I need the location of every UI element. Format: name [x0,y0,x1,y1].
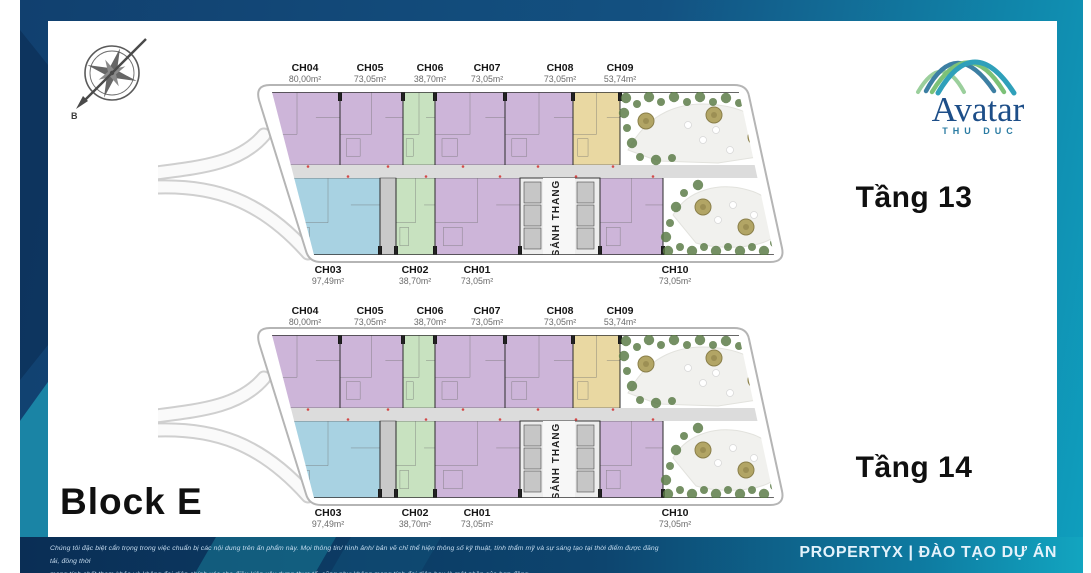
unit-id-label: CH09 [607,62,634,74]
disclaimer-line-2: mang tính chất tham khảo và không đại di… [50,568,670,573]
unit-area-label: 97,49m² [312,276,344,286]
unit-area-label: 53,74m² [604,317,636,327]
content-panel: B Avatar THU DUC SẢNH THANGCH0480,00m²CH… [48,21,1057,537]
core-label: SẢNH THANG [549,180,562,257]
footer-brand-text: PROPERTYX | ĐÀO TẠO DỰ ÁN [799,544,1057,562]
unit-id-label: CH07 [474,62,501,74]
unit-id-label: CH10 [662,507,689,519]
logo-arches-icon [918,62,1014,93]
unit-id-label: CH03 [315,264,342,276]
unit-area-label: 73,05m² [354,74,386,84]
unit-id-label: CH06 [417,62,444,74]
avatar-logo: Avatar THU DUC [898,31,1058,139]
unit-area-label: 73,05m² [354,317,386,327]
floor-label-tang-13: Tầng 13 [804,181,1024,215]
unit-id-label: CH04 [292,305,319,317]
unit-area-label: 73,05m² [461,276,493,286]
floor-label-tang-14: Tầng 14 [804,451,1024,485]
unit-area-label: 80,00m² [289,74,321,84]
unit-id-label: CH02 [402,507,429,519]
unit-area-label: 73,05m² [471,74,503,84]
unit-id-label: CH01 [464,507,491,519]
unit-area-label: 97,49m² [312,519,344,529]
unit-area-label: 38,70m² [399,519,431,529]
unit-area-label: 38,70m² [414,317,446,327]
unit-id-label: CH08 [547,62,574,74]
unit-area-label: 80,00m² [289,317,321,327]
footer-bar: Chúng tôi đặc biệt cẩn trọng trong việc … [20,537,1083,573]
unit-id-label: CH05 [357,62,384,74]
unit-area-label: 73,05m² [659,276,691,286]
footer-disclaimer: Chúng tôi đặc biệt cẩn trọng trong việc … [50,542,670,573]
block-label: Block E [60,481,203,523]
background-frame: B Avatar THU DUC SẢNH THANGCH0480,00m²CH… [20,0,1083,573]
unit-id-label: CH04 [292,62,319,74]
logo-title: Avatar [932,90,1025,129]
disclaimer-line-1: Chúng tôi đặc biệt cẩn trọng trong việc … [50,542,670,568]
unit-id-label: CH01 [464,264,491,276]
logo-subtitle: THU DUC [942,126,1018,136]
core-label: SẢNH THANG [549,423,562,500]
unit-id-label: CH06 [417,305,444,317]
unit-area-label: 73,05m² [471,317,503,327]
unit-id-label: CH07 [474,305,501,317]
unit-area-label: 38,70m² [399,276,431,286]
compass-icon: B [64,29,160,125]
left-band-shade [20,30,48,380]
unit-id-label: CH02 [402,264,429,276]
unit-id-label: CH08 [547,305,574,317]
unit-id-label: CH03 [315,507,342,519]
unit-id-label: CH05 [357,305,384,317]
unit-area-label: 53,74m² [604,74,636,84]
unit-area-label: 73,05m² [544,74,576,84]
floor-plan-tang-13: SẢNH THANGCH0480,00m²CH0573,05m²CH0638,7… [158,55,798,290]
unit-area-label: 38,70m² [414,74,446,84]
unit-area-label: 73,05m² [544,317,576,327]
floor-plan-tang-14: SẢNH THANGCH0480,00m²CH0573,05m²CH0638,7… [158,298,798,533]
unit-id-label: CH10 [662,264,689,276]
unit-area-label: 73,05m² [461,519,493,529]
compass-north-label: B [71,111,78,121]
unit-id-label: CH09 [607,305,634,317]
unit-area-label: 73,05m² [659,519,691,529]
